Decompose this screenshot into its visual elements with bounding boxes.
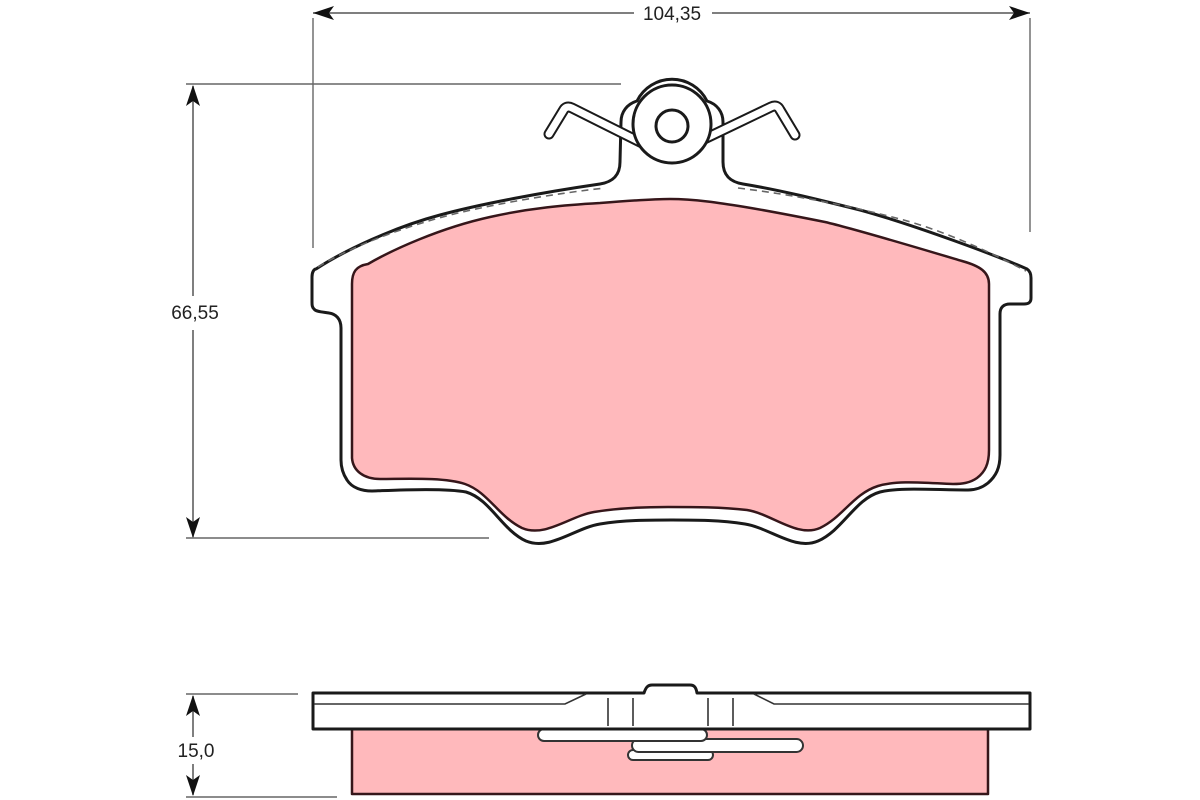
backplate-side-profile	[313, 685, 1030, 729]
front-view	[312, 79, 1031, 543]
width-dimension-label: 104,35	[643, 4, 701, 25]
friction-material	[352, 199, 989, 531]
drawing-svg: 104,35 66,55 15,0	[0, 0, 1200, 800]
height-dimension-label: 66,55	[171, 303, 219, 324]
tab-hole-inner-circle	[656, 110, 688, 142]
side-view	[313, 685, 1030, 794]
brake-pad-technical-drawing: 104,35 66,55 15,0	[0, 0, 1200, 800]
thickness-dimension-label: 15,0	[178, 741, 215, 762]
spring-slot-top	[538, 729, 707, 741]
